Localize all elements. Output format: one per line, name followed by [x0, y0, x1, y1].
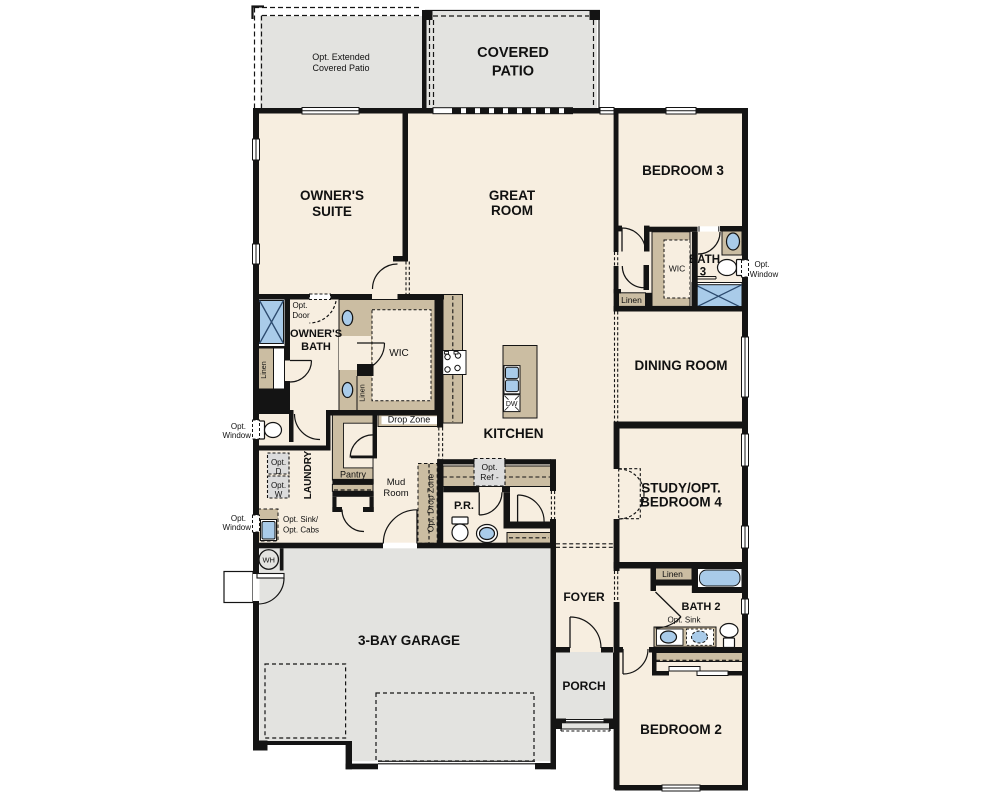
- svg-text:BEDROOM 2: BEDROOM 2: [640, 722, 722, 737]
- svg-text:GREAT: GREAT: [489, 188, 536, 203]
- svg-text:D: D: [276, 467, 282, 476]
- svg-text:Opt.: Opt.: [271, 481, 286, 490]
- svg-text:Opt.: Opt.: [231, 514, 246, 523]
- svg-text:Linen: Linen: [621, 295, 642, 305]
- svg-text:OWNER'S: OWNER'S: [290, 328, 342, 340]
- svg-text:W: W: [275, 490, 283, 499]
- svg-text:3: 3: [700, 267, 706, 279]
- svg-text:Opt. Extended: Opt. Extended: [312, 52, 370, 62]
- svg-text:Room: Room: [383, 488, 408, 499]
- svg-text:Drop Zone: Drop Zone: [388, 415, 431, 425]
- svg-text:BATH: BATH: [301, 341, 331, 353]
- svg-text:Door: Door: [292, 311, 310, 320]
- svg-text:Pantry: Pantry: [340, 470, 367, 480]
- svg-text:OWNER'S: OWNER'S: [300, 188, 364, 203]
- svg-text:3-BAY GARAGE: 3-BAY GARAGE: [358, 633, 460, 648]
- svg-text:STUDY/OPT.: STUDY/OPT.: [641, 481, 721, 496]
- svg-text:Window: Window: [223, 431, 252, 440]
- svg-text:LAUNDRY: LAUNDRY: [303, 450, 314, 499]
- svg-text:Opt.: Opt.: [292, 301, 307, 310]
- svg-text:Ref -: Ref -: [480, 472, 499, 482]
- svg-text:PATIO: PATIO: [492, 64, 534, 80]
- svg-text:Opt. Drop Zone: Opt. Drop Zone: [426, 473, 436, 532]
- svg-text:WIC: WIC: [669, 264, 686, 274]
- svg-text:Opt.: Opt.: [271, 458, 286, 467]
- svg-text:Opt. Cabs: Opt. Cabs: [283, 526, 319, 535]
- svg-text:DINING ROOM: DINING ROOM: [635, 358, 728, 373]
- svg-text:Mud: Mud: [387, 477, 405, 488]
- svg-text:ROOM: ROOM: [491, 203, 533, 218]
- svg-text:WH: WH: [262, 555, 275, 564]
- svg-text:PORCH: PORCH: [562, 679, 605, 693]
- svg-text:Opt.: Opt.: [754, 260, 769, 269]
- svg-text:Window: Window: [223, 523, 252, 532]
- svg-text:BATH: BATH: [689, 254, 720, 266]
- svg-text:BEDROOM 3: BEDROOM 3: [642, 163, 724, 178]
- svg-text:SUITE: SUITE: [312, 204, 352, 219]
- svg-text:P.R.: P.R.: [454, 500, 474, 512]
- svg-text:Opt. Sink/: Opt. Sink/: [283, 515, 319, 524]
- svg-text:Opt. Sink: Opt. Sink: [668, 616, 702, 625]
- svg-text:Window: Window: [750, 270, 779, 279]
- svg-text:Opt.: Opt.: [231, 422, 246, 431]
- svg-text:BEDROOM 4: BEDROOM 4: [640, 495, 722, 510]
- svg-text:DW: DW: [506, 401, 518, 408]
- svg-text:WIC: WIC: [389, 348, 408, 359]
- svg-text:Covered Patio: Covered Patio: [312, 63, 369, 73]
- svg-text:Opt.: Opt.: [481, 462, 497, 472]
- svg-text:Linen: Linen: [662, 569, 683, 579]
- svg-text:COVERED: COVERED: [477, 45, 549, 61]
- svg-text:Linen: Linen: [358, 384, 367, 402]
- svg-text:KITCHEN: KITCHEN: [484, 426, 544, 441]
- svg-text:FOYER: FOYER: [563, 590, 605, 604]
- svg-text:BATH 2: BATH 2: [682, 601, 721, 613]
- svg-text:Linen: Linen: [259, 361, 268, 379]
